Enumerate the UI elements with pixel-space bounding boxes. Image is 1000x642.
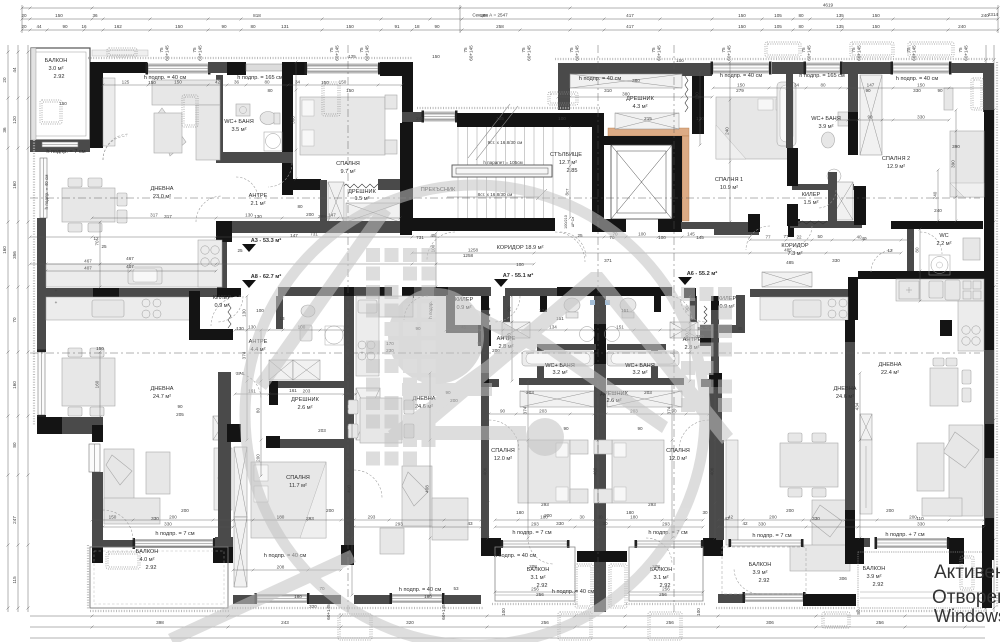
svg-text:306: 306 <box>766 620 774 625</box>
svg-text:180: 180 <box>540 515 548 520</box>
svg-text:24.7 м²: 24.7 м² <box>153 394 171 400</box>
svg-text:180: 180 <box>630 515 638 520</box>
svg-text:100: 100 <box>696 608 701 616</box>
svg-text:90: 90 <box>177 404 183 409</box>
svg-text:150: 150 <box>346 24 354 29</box>
svg-text:75: 75 <box>651 47 656 53</box>
svg-text:330: 330 <box>913 88 921 93</box>
svg-text:h подпр. = 7 см: h подпр. = 7 см <box>46 149 85 155</box>
svg-text:279: 279 <box>736 88 744 93</box>
svg-text:200: 200 <box>769 515 777 520</box>
svg-text:90: 90 <box>867 115 873 120</box>
svg-text:208: 208 <box>277 565 285 570</box>
svg-text:200: 200 <box>181 508 189 513</box>
svg-text:390: 390 <box>951 160 956 168</box>
svg-text:320: 320 <box>406 620 414 625</box>
svg-text:135: 135 <box>836 13 844 18</box>
svg-text:3.2 м²: 3.2 м² <box>632 370 647 376</box>
svg-text:200: 200 <box>306 212 314 217</box>
svg-text:25: 25 <box>237 248 243 253</box>
svg-text:СПАЛНЯ: СПАЛНЯ <box>666 448 690 454</box>
svg-text:ΔР Сп: ΔР Сп <box>571 217 575 227</box>
svg-text:А8 - 62.7 м²: А8 - 62.7 м² <box>251 273 282 280</box>
svg-text:36: 36 <box>92 13 98 18</box>
svg-text:131: 131 <box>281 24 289 29</box>
svg-text:КИЛЕР: КИЛЕР <box>802 192 821 198</box>
svg-text:406: 406 <box>483 467 488 475</box>
svg-text:406: 406 <box>710 467 715 475</box>
svg-text:90: 90 <box>937 88 943 93</box>
svg-text:3.9 м²: 3.9 м² <box>866 574 881 580</box>
svg-text:25: 25 <box>577 233 583 238</box>
svg-text:120: 120 <box>12 116 17 124</box>
svg-text:130: 130 <box>695 92 700 100</box>
svg-text:180: 180 <box>277 515 285 520</box>
svg-text:256: 256 <box>666 620 674 625</box>
svg-text:256: 256 <box>876 620 884 625</box>
svg-text:205: 205 <box>176 412 184 417</box>
svg-text:398: 398 <box>156 620 164 625</box>
svg-text:317: 317 <box>150 213 158 218</box>
svg-text:11.7 м²: 11.7 м² <box>289 483 307 489</box>
svg-text:150: 150 <box>55 13 63 18</box>
svg-text:1258: 1258 <box>468 248 479 253</box>
svg-text:Windows: Windows <box>934 606 1000 626</box>
svg-text:80: 80 <box>798 13 804 18</box>
svg-text:150: 150 <box>59 101 67 106</box>
svg-text:467: 467 <box>126 256 134 261</box>
svg-text:h подпр. = 40 см: h подпр. = 40 см <box>896 76 939 82</box>
svg-text:h подпр. = 165 см: h подпр. = 165 см <box>237 75 283 81</box>
svg-text:ДРЕШНИК: ДРЕШНИК <box>291 397 319 403</box>
svg-text:256: 256 <box>536 592 544 597</box>
svg-text:256: 256 <box>541 620 549 625</box>
svg-text:203: 203 <box>318 428 326 433</box>
svg-text:0.9 м²: 0.9 м² <box>214 303 229 309</box>
svg-text:417: 417 <box>626 13 634 18</box>
svg-text:ДНЕВНА: ДНЕВНА <box>878 362 901 368</box>
svg-text:12: 12 <box>887 248 893 253</box>
svg-text:147: 147 <box>328 213 336 218</box>
svg-text:162: 162 <box>114 24 122 29</box>
svg-text:ДРЕШНИК: ДРЕШНИК <box>348 189 376 195</box>
svg-text:374: 374 <box>523 406 528 414</box>
svg-text:60+145: 60+145 <box>469 45 474 61</box>
svg-text:12.0 м²: 12.0 м² <box>494 456 512 462</box>
svg-text:256: 256 <box>662 587 670 592</box>
svg-text:4619: 4619 <box>823 3 834 8</box>
svg-text:434: 434 <box>855 402 860 410</box>
svg-text:42: 42 <box>728 515 734 520</box>
svg-text:306: 306 <box>839 576 847 581</box>
svg-text:h подпр. = 165 см: h подпр. = 165 см <box>799 73 845 79</box>
svg-text:h подпр. + 7 см: h подпр. + 7 см <box>885 532 924 538</box>
svg-text:2.92: 2.92 <box>873 582 884 588</box>
svg-text:2.6 м²: 2.6 м² <box>297 405 312 411</box>
svg-text:330: 330 <box>917 522 925 527</box>
svg-text:150: 150 <box>917 83 925 88</box>
svg-text:256: 256 <box>659 592 667 597</box>
svg-text:150: 150 <box>737 83 745 88</box>
svg-text:90: 90 <box>62 24 68 29</box>
svg-text:42: 42 <box>742 521 748 526</box>
svg-text:20: 20 <box>2 77 7 83</box>
svg-text:80: 80 <box>12 442 17 448</box>
svg-text:208: 208 <box>529 564 537 569</box>
svg-text:80: 80 <box>267 88 273 93</box>
svg-text:75: 75 <box>359 47 364 53</box>
svg-text:90: 90 <box>500 409 506 414</box>
svg-text:СПАЛНЯ 1: СПАЛНЯ 1 <box>715 177 743 183</box>
svg-text:44: 44 <box>12 67 17 73</box>
svg-text:151: 151 <box>616 325 624 330</box>
svg-text:135: 135 <box>836 24 844 29</box>
svg-text:161: 161 <box>289 388 297 393</box>
svg-text:WC: WC <box>939 233 948 239</box>
svg-text:h подпр. = 7 см: h подпр. = 7 см <box>512 530 551 536</box>
svg-text:90: 90 <box>221 24 227 29</box>
svg-text:80: 80 <box>297 204 303 209</box>
svg-text:h подпр. = 40 см: h подпр. = 40 см <box>44 175 49 210</box>
svg-text:40: 40 <box>861 236 867 241</box>
svg-text:А6 - 55.2 м²: А6 - 55.2 м² <box>687 270 718 277</box>
svg-text:467: 467 <box>84 259 92 264</box>
svg-text:203: 203 <box>644 390 652 395</box>
svg-text:417: 417 <box>626 24 634 29</box>
svg-text:ДНЕВНА: ДНЕВНА <box>833 386 856 392</box>
svg-text:115: 115 <box>12 576 17 584</box>
svg-text:90: 90 <box>507 306 512 312</box>
svg-text:380: 380 <box>622 92 630 97</box>
svg-text:330: 330 <box>758 522 766 527</box>
svg-text:2.2 м²: 2.2 м² <box>936 241 951 247</box>
svg-text:75: 75 <box>521 47 526 53</box>
svg-text:356: 356 <box>12 251 17 259</box>
svg-text:23.0 м²: 23.0 м² <box>153 194 171 200</box>
svg-text:БАЛКОН: БАЛКОН <box>749 562 772 568</box>
svg-text:160: 160 <box>12 181 17 189</box>
svg-text:22: 22 <box>796 235 802 240</box>
svg-text:247: 247 <box>12 516 17 524</box>
svg-text:130: 130 <box>242 309 247 317</box>
svg-text:12: 12 <box>93 236 99 241</box>
svg-text:374: 374 <box>667 406 672 414</box>
svg-text:h подпр. = 40 см: h подпр. = 40 см <box>579 76 622 82</box>
svg-text:1258: 1258 <box>463 253 474 258</box>
svg-text:330: 330 <box>917 115 925 120</box>
svg-text:90: 90 <box>865 88 871 93</box>
svg-text:75: 75 <box>192 47 197 53</box>
svg-text:3.1 м²: 3.1 м² <box>653 575 668 581</box>
svg-text:485: 485 <box>784 248 792 253</box>
svg-text:75: 75 <box>569 47 574 53</box>
svg-text:400: 400 <box>347 485 352 493</box>
svg-text:3.0 м²: 3.0 м² <box>48 66 63 72</box>
svg-text:125: 125 <box>348 54 356 59</box>
svg-text:818: 818 <box>253 13 261 18</box>
svg-text:407: 407 <box>126 264 134 269</box>
svg-text:90: 90 <box>434 24 440 29</box>
svg-text:215: 215 <box>644 116 652 121</box>
svg-text:203: 203 <box>539 409 547 414</box>
svg-text:180: 180 <box>424 594 432 599</box>
svg-text:293: 293 <box>648 502 656 507</box>
svg-text:СПАЛНЯ 2: СПАЛНЯ 2 <box>882 156 910 162</box>
svg-text:150: 150 <box>96 346 104 351</box>
svg-text:44: 44 <box>36 24 42 29</box>
svg-text:h подпр. = 40 см: h подпр. = 40 см <box>494 553 537 559</box>
svg-text:WC+ БАНЯ: WC+ БАНЯ <box>224 119 254 125</box>
svg-text:310: 310 <box>604 88 612 93</box>
svg-text:90: 90 <box>637 426 643 431</box>
svg-text:408: 408 <box>425 485 430 493</box>
svg-text:45: 45 <box>737 326 743 331</box>
svg-text:200: 200 <box>786 508 794 513</box>
svg-text:150: 150 <box>339 80 347 85</box>
svg-text:150: 150 <box>738 24 746 29</box>
svg-text:h подпр. = 7 см: h подпр. = 7 см <box>155 531 194 537</box>
svg-text:77: 77 <box>765 235 771 240</box>
svg-text:3.5 м²: 3.5 м² <box>231 127 246 133</box>
svg-text:80: 80 <box>915 247 920 253</box>
svg-text:150: 150 <box>346 88 354 93</box>
svg-text:2314: 2314 <box>988 12 999 17</box>
svg-text:60+145: 60+145 <box>441 604 446 620</box>
svg-text:100: 100 <box>638 232 646 237</box>
svg-text:70: 70 <box>12 317 17 323</box>
svg-text:22.4 м²: 22.4 м² <box>881 370 899 376</box>
svg-text:258: 258 <box>496 24 504 29</box>
svg-text:Активен: Активен <box>934 562 1000 583</box>
svg-text:100: 100 <box>516 262 524 267</box>
svg-text:80: 80 <box>798 24 804 29</box>
svg-text:100/210: 100/210 <box>564 215 568 229</box>
svg-text:200: 200 <box>326 508 334 513</box>
svg-text:330: 330 <box>556 521 564 526</box>
svg-text:БАЛКОН: БАЛКОН <box>863 566 886 572</box>
svg-text:731: 731 <box>416 235 424 240</box>
svg-text:293: 293 <box>306 516 314 521</box>
svg-text:75: 75 <box>721 47 726 53</box>
svg-text:1.5 м²: 1.5 м² <box>803 200 818 206</box>
svg-text:Отворени: Отворени <box>932 587 1000 608</box>
svg-text:СПАЛНЯ: СПАЛНЯ <box>286 475 310 481</box>
svg-text:80: 80 <box>256 408 261 414</box>
svg-text:3.1 м²: 3.1 м² <box>530 575 545 581</box>
svg-text:374: 374 <box>242 351 247 359</box>
svg-text:80: 80 <box>250 24 256 29</box>
svg-text:40: 40 <box>856 235 862 240</box>
svg-text:75: 75 <box>463 47 468 53</box>
svg-text:105: 105 <box>774 13 782 18</box>
svg-text:12.0 м²: 12.0 м² <box>669 456 687 462</box>
svg-text:300: 300 <box>291 116 296 124</box>
svg-text:100: 100 <box>501 608 506 616</box>
svg-text:80: 80 <box>820 83 826 88</box>
svg-text:330: 330 <box>151 516 159 521</box>
svg-text:75: 75 <box>958 47 963 53</box>
svg-text:10.9 м²: 10.9 м² <box>720 185 738 191</box>
svg-text:731: 731 <box>310 232 318 237</box>
svg-text:9ст. х 16.8/30 см: 9ст. х 16.8/30 см <box>488 140 523 145</box>
svg-text:371: 371 <box>604 258 612 263</box>
svg-text:180: 180 <box>516 510 524 515</box>
svg-text:3.2 м²: 3.2 м² <box>552 370 567 376</box>
svg-text:34: 34 <box>794 83 800 88</box>
svg-text:2.92: 2.92 <box>146 565 157 571</box>
svg-text:20: 20 <box>21 24 27 29</box>
svg-text:293: 293 <box>662 522 670 527</box>
svg-text:А3 - 53.3 м²: А3 - 53.3 м² <box>251 237 282 244</box>
svg-text:2.92: 2.92 <box>54 74 65 80</box>
svg-text:30: 30 <box>597 515 603 520</box>
svg-text:203: 203 <box>526 390 534 395</box>
svg-text:1.5 м²: 1.5 м² <box>354 196 369 202</box>
svg-text:110: 110 <box>916 516 924 521</box>
svg-text:150: 150 <box>109 515 117 520</box>
svg-text:407: 407 <box>84 266 92 271</box>
svg-text:75: 75 <box>159 47 164 53</box>
svg-text:25: 25 <box>101 244 107 249</box>
svg-text:h подпр. = 40 см: h подпр. = 40 см <box>720 73 763 79</box>
svg-text:+: + <box>55 300 58 305</box>
svg-text:12.7 м²: 12.7 м² <box>559 160 577 166</box>
svg-text:130: 130 <box>254 214 262 219</box>
svg-text:36: 36 <box>234 80 240 85</box>
svg-text:80: 80 <box>264 80 270 85</box>
svg-text:240: 240 <box>725 127 730 135</box>
svg-text:243: 243 <box>281 620 289 625</box>
svg-text:3.9 м²: 3.9 м² <box>752 570 767 576</box>
svg-text:77: 77 <box>783 234 789 239</box>
svg-text:380: 380 <box>632 78 640 83</box>
svg-text:145: 145 <box>687 232 695 237</box>
svg-text:13: 13 <box>279 316 285 321</box>
svg-text:43: 43 <box>467 521 473 526</box>
svg-text:90: 90 <box>563 426 569 431</box>
svg-text:200: 200 <box>886 508 894 513</box>
svg-text:160: 160 <box>95 380 100 388</box>
svg-text:53: 53 <box>453 586 459 591</box>
svg-text:50: 50 <box>817 234 823 239</box>
svg-text:240: 240 <box>958 24 966 29</box>
svg-text:WC+ БАНЯ: WC+ БАНЯ <box>811 116 841 122</box>
svg-text:147: 147 <box>867 83 875 88</box>
svg-text:100: 100 <box>256 308 264 313</box>
svg-text:36: 36 <box>2 127 7 133</box>
svg-text:СПАЛНЯ: СПАЛНЯ <box>491 448 515 454</box>
svg-text:20: 20 <box>21 13 27 18</box>
svg-text:130: 130 <box>248 325 256 330</box>
svg-text:125: 125 <box>122 80 130 85</box>
svg-text:200: 200 <box>256 454 261 462</box>
svg-text:WC+ БАНЯ: WC+ БАНЯ <box>625 363 655 369</box>
svg-text:293: 293 <box>395 522 403 527</box>
svg-text:БАЛКОН: БАЛКОН <box>136 549 159 555</box>
svg-text:СТЪЛБИЩЕ: СТЪЛБИЩЕ <box>550 152 582 158</box>
svg-text:330: 330 <box>164 522 172 527</box>
svg-text:100: 100 <box>558 116 566 121</box>
svg-text:70: 70 <box>95 240 100 246</box>
svg-text:12.9 м²: 12.9 м² <box>887 164 905 170</box>
svg-text:75: 75 <box>329 47 334 53</box>
svg-text:150: 150 <box>738 13 746 18</box>
svg-text:60+145: 60+145 <box>326 604 331 620</box>
svg-text:150: 150 <box>872 13 880 18</box>
svg-text:485: 485 <box>786 260 794 265</box>
svg-text:8ст: 8ст <box>565 188 570 196</box>
svg-text:КОРИДОР 18.9 м²: КОРИДОР 18.9 м² <box>497 245 544 251</box>
svg-text:293: 293 <box>541 502 549 507</box>
svg-text:147: 147 <box>290 233 298 238</box>
svg-text:4.3 м²: 4.3 м² <box>632 104 647 110</box>
svg-text:180: 180 <box>294 594 302 599</box>
svg-text:БАЛКОН: БАЛКОН <box>45 58 68 64</box>
svg-text:3.9 м²: 3.9 м² <box>818 124 833 130</box>
svg-text:105: 105 <box>774 24 782 29</box>
svg-text:60+145: 60+145 <box>527 45 532 61</box>
svg-text:4.0 м²: 4.0 м² <box>139 557 154 563</box>
svg-text:42: 42 <box>215 80 221 85</box>
svg-text:ДНЕВНА: ДНЕВНА <box>150 386 173 392</box>
svg-text:330: 330 <box>812 516 820 521</box>
svg-text:А7 - 55.1 м²: А7 - 55.1 м² <box>503 272 534 279</box>
svg-text:245: 245 <box>416 116 424 121</box>
svg-text:160: 160 <box>2 246 7 254</box>
svg-text:24.6 м²: 24.6 м² <box>836 394 854 400</box>
svg-text:200: 200 <box>169 515 177 520</box>
svg-text:34: 34 <box>295 80 301 85</box>
svg-text:2.92: 2.92 <box>759 578 770 584</box>
svg-text:130: 130 <box>245 213 253 218</box>
svg-text:330: 330 <box>832 258 840 263</box>
svg-text:130: 130 <box>236 326 244 331</box>
svg-text:203: 203 <box>303 389 311 394</box>
svg-text:289: 289 <box>318 214 326 219</box>
svg-text:КИЛЕР: КИЛЕР <box>213 295 232 301</box>
svg-text:h подпр. = 40 см: h подпр. = 40 см <box>399 587 442 593</box>
svg-text:18: 18 <box>414 24 420 29</box>
svg-text:150: 150 <box>174 80 182 85</box>
svg-text:293: 293 <box>368 515 376 520</box>
svg-text:h подпр. = 7 см: h подпр. = 7 см <box>752 533 791 539</box>
svg-text:125: 125 <box>496 116 504 121</box>
svg-text:145: 145 <box>696 235 704 240</box>
svg-text:91: 91 <box>394 24 400 29</box>
svg-text:Секция А = 2547: Секция А = 2547 <box>472 13 508 18</box>
svg-text:2.1 м²: 2.1 м² <box>250 201 265 207</box>
svg-text:150: 150 <box>872 24 880 29</box>
svg-text:317: 317 <box>164 214 172 219</box>
svg-text:30: 30 <box>702 510 708 515</box>
svg-text:+: + <box>55 288 58 293</box>
svg-text:30: 30 <box>579 515 585 520</box>
svg-text:2.85: 2.85 <box>567 168 578 174</box>
svg-text:256: 256 <box>531 587 539 592</box>
svg-text:ДНЕВНА: ДНЕВНА <box>150 186 173 192</box>
svg-text:150: 150 <box>432 54 440 59</box>
svg-text:30: 30 <box>602 521 608 526</box>
svg-text:406: 406 <box>593 467 598 475</box>
svg-text:150: 150 <box>175 24 183 29</box>
svg-text:150: 150 <box>148 80 156 85</box>
svg-text:293: 293 <box>531 522 539 527</box>
svg-text:160: 160 <box>12 381 17 389</box>
svg-text:h парапет = 105см: h парапет = 105см <box>483 160 522 165</box>
svg-text:75: 75 <box>851 47 856 53</box>
svg-text:75: 75 <box>801 47 806 53</box>
svg-text:16: 16 <box>81 24 87 29</box>
